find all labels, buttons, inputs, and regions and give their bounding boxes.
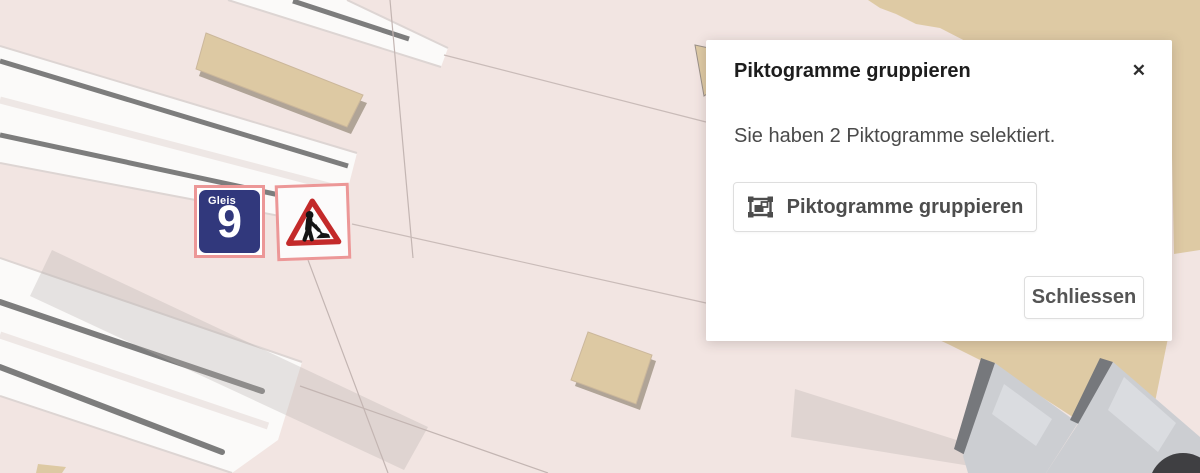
- schliessen-button[interactable]: Schliessen: [1024, 276, 1144, 319]
- pictogram-gleis-9[interactable]: Gleis 9: [194, 185, 265, 258]
- gleis-sign-number: 9: [199, 199, 260, 244]
- group-pictograms-button[interactable]: Piktogramme gruppieren: [733, 182, 1037, 232]
- schliessen-button-label: Schliessen: [1032, 286, 1137, 309]
- pictogram-construction[interactable]: [275, 183, 352, 262]
- construction-warning-icon: [283, 195, 343, 250]
- dialog-title: Piktogramme gruppieren: [734, 60, 971, 83]
- map-editor-viewport: Gleis 9 Piktogramme gruppieren ✕ Sie hab…: [0, 0, 1200, 473]
- dialog-message: Sie haben 2 Piktogramme selektiert.: [734, 125, 1055, 148]
- group-pictograms-dialog: Piktogramme gruppieren ✕ Sie haben 2 Pik…: [706, 40, 1172, 341]
- close-icon[interactable]: ✕: [1132, 60, 1146, 82]
- gleis-sign-face: Gleis 9: [199, 190, 260, 253]
- object-group-icon: [747, 195, 774, 219]
- group-pictograms-button-label: Piktogramme gruppieren: [787, 196, 1024, 219]
